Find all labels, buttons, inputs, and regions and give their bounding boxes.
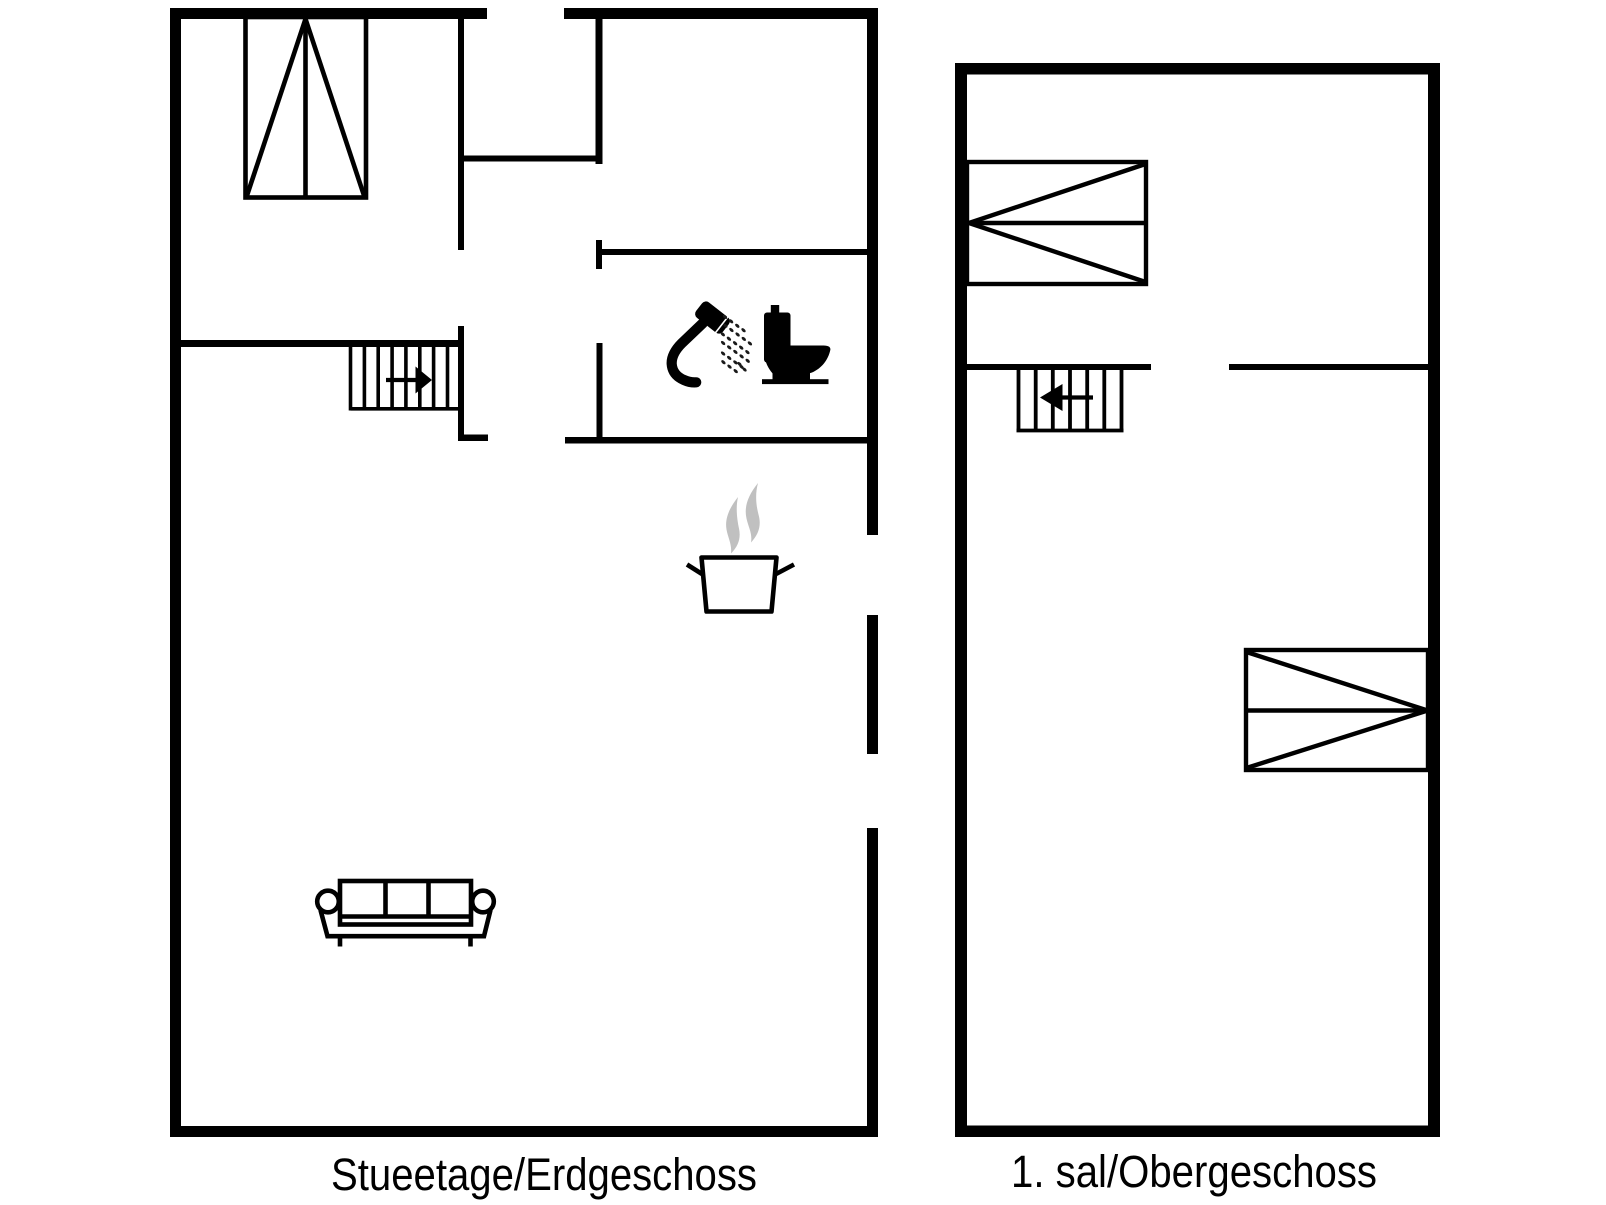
svg-text:1. sal/Obergeschoss: 1. sal/Obergeschoss (1011, 1146, 1377, 1197)
svg-text:Stueetage/Erdgeschoss: Stueetage/Erdgeschoss (331, 1149, 757, 1200)
